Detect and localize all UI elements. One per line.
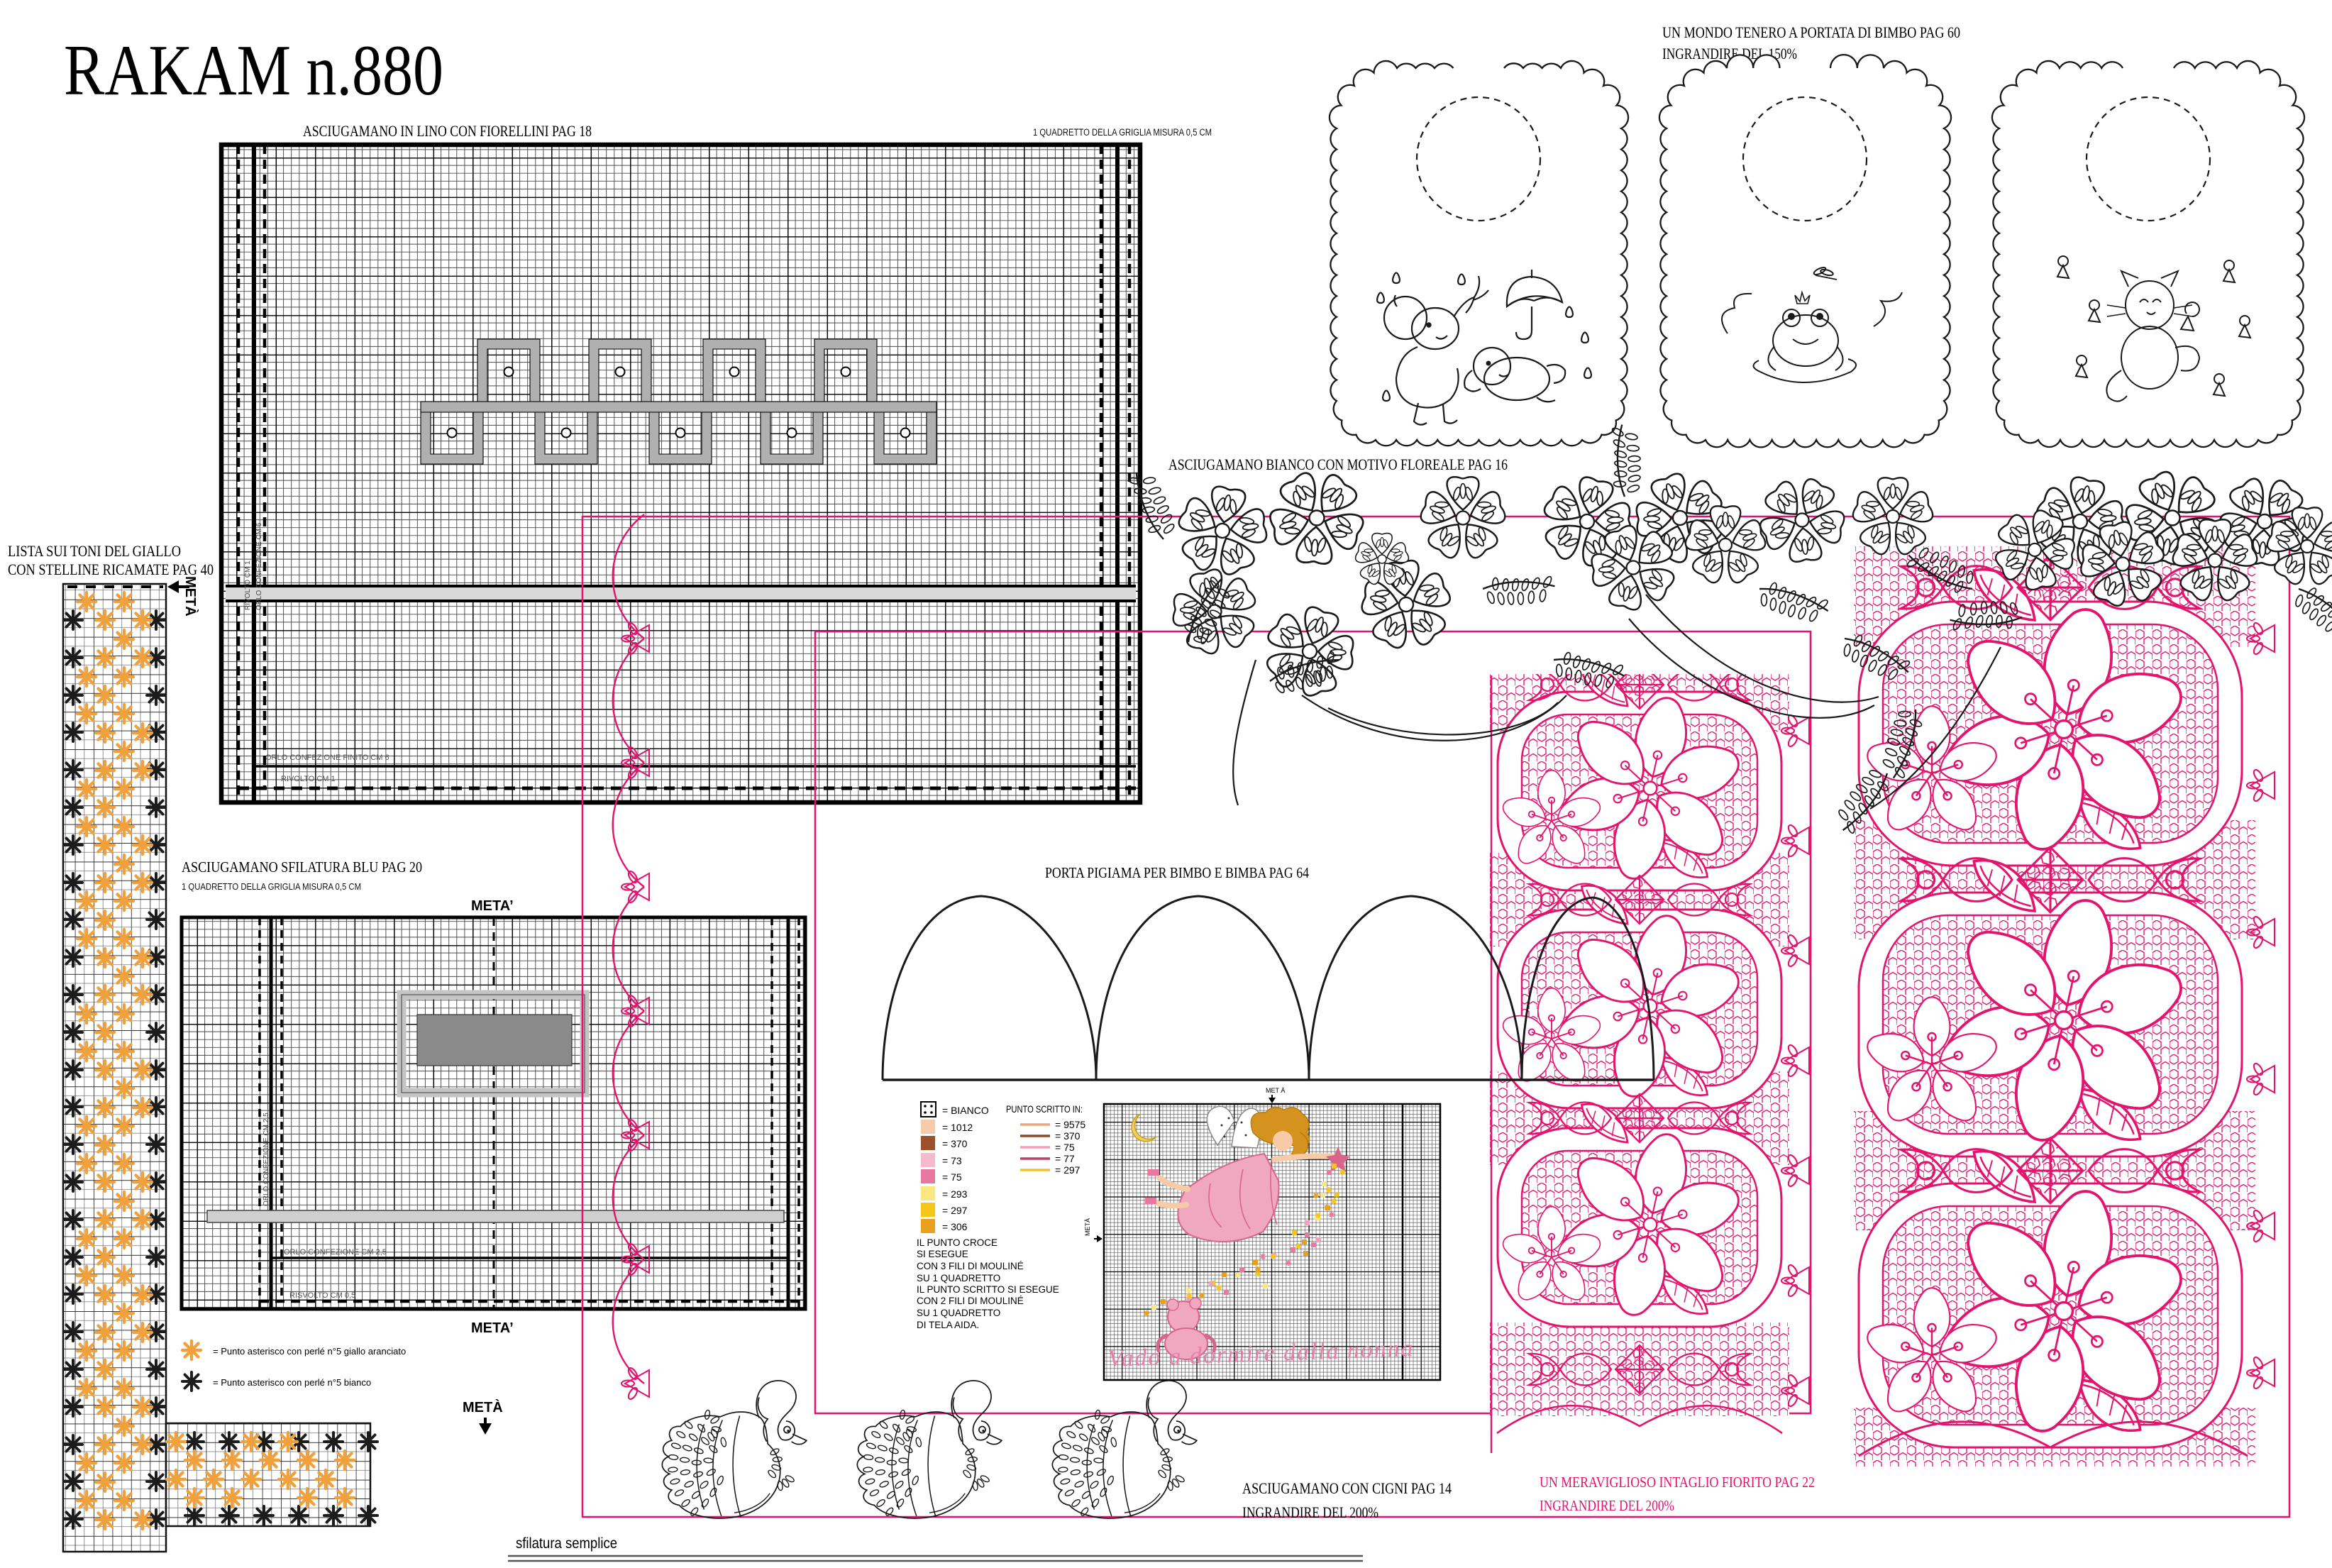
svg-text:ORLO CONFEZIONE CM 2,5: ORLO CONFEZIONE CM 2,5 xyxy=(263,1112,270,1206)
svg-text:= 75: = 75 xyxy=(942,1171,962,1183)
svg-text:ASCIUGAMANO IN LINO CON FIOREL: ASCIUGAMANO IN LINO CON FIORELLINI PAG 1… xyxy=(303,122,592,140)
svg-text:LISTA SUI TONI DEL GIALLO: LISTA SUI TONI DEL GIALLO xyxy=(8,542,181,560)
svg-text:RIVOLTO CM 1: RIVOLTO CM 1 xyxy=(244,561,252,610)
svg-text:INGRANDIRE DEL 200%: INGRANDIRE DEL 200% xyxy=(1242,1503,1378,1521)
svg-text:SI ESEGUE: SI ESEGUE xyxy=(917,1249,968,1259)
svg-text:RAKAM n.880: RAKAM n.880 xyxy=(64,31,443,111)
svg-text:= 75: = 75 xyxy=(1055,1142,1075,1153)
svg-text:1 QUADRETTO DELLA GRIGLIA MISU: 1 QUADRETTO DELLA GRIGLIA MISURA 0,5 CM xyxy=(182,881,361,892)
svg-text:MET À: MET À xyxy=(1266,1087,1285,1094)
svg-text:META’: META’ xyxy=(471,898,514,914)
svg-text:= 77: = 77 xyxy=(1055,1153,1075,1164)
svg-text:= 297: = 297 xyxy=(942,1205,968,1216)
svg-text:1 QUADRETTO DELLA GRIGLIA MISU: 1 QUADRETTO DELLA GRIGLIA MISURA 0,5 CM xyxy=(1033,127,1212,138)
svg-text:INGRANDIRE DEL 200%: INGRANDIRE DEL 200% xyxy=(1540,1497,1674,1514)
svg-text:CON 2 FILI DI MOULINÉ: CON 2 FILI DI MOULINÉ xyxy=(917,1296,1024,1306)
svg-text:IL PUNTO CROCE: IL PUNTO CROCE xyxy=(917,1237,998,1248)
svg-text:METÀ: METÀ xyxy=(1084,1218,1091,1236)
svg-text:ORLO CONFEZIONE FINITO CM 6: ORLO CONFEZIONE FINITO CM 6 xyxy=(265,753,389,762)
svg-text:= Punto asterisco con perlé n°: = Punto asterisco con perlé n°5 bianco xyxy=(213,1377,371,1388)
svg-text:METÀ: METÀ xyxy=(463,1399,503,1415)
svg-text:UN MERAVIGLIOSO INTAGLIO FIORI: UN MERAVIGLIOSO INTAGLIO FIORITO PAG 22 xyxy=(1540,1474,1815,1491)
svg-text:META’: META’ xyxy=(471,1320,514,1336)
svg-text:SU 1 QUADRETTO: SU 1 QUADRETTO xyxy=(917,1308,1000,1318)
svg-text:ASCIUGAMANO SFILATURA BLU PAG: ASCIUGAMANO SFILATURA BLU PAG 20 xyxy=(182,858,422,876)
svg-text:ASCIUGAMANO BIANCO CON MOTIVO: ASCIUGAMANO BIANCO CON MOTIVO FLOREALE P… xyxy=(1168,456,1508,473)
svg-text:ORLO CONFEZIONE CM 2,5: ORLO CONFEZIONE CM 2,5 xyxy=(284,1248,387,1257)
svg-text:= BIANCO: = BIANCO xyxy=(942,1105,989,1116)
svg-text:IL PUNTO SCRITTO SI ESEGUE: IL PUNTO SCRITTO SI ESEGUE xyxy=(917,1284,1059,1295)
svg-text:= 1012: = 1012 xyxy=(942,1122,973,1133)
svg-text:= 293: = 293 xyxy=(942,1188,968,1200)
svg-text:ORLO CONFEZIONE CM 6: ORLO CONFEZIONE CM 6 xyxy=(255,522,263,610)
svg-text:= 73: = 73 xyxy=(942,1155,962,1166)
svg-text:METÀ: METÀ xyxy=(182,576,199,617)
svg-text:DI TELA AIDA.: DI TELA AIDA. xyxy=(917,1320,979,1330)
svg-text:= 297: = 297 xyxy=(1055,1164,1081,1176)
svg-text:CON 3 FILI DI MOULINÉ: CON 3 FILI DI MOULINÉ xyxy=(917,1261,1024,1271)
svg-text:sfilatura semplice: sfilatura semplice xyxy=(516,1535,617,1552)
svg-text:= 9575: = 9575 xyxy=(1055,1119,1085,1130)
svg-text:= Punto asterisco con perlé n°: = Punto asterisco con perlé n°5 giallo a… xyxy=(213,1346,406,1357)
svg-text:ASCIUGAMANO CON CIGNI PAG 14: ASCIUGAMANO CON CIGNI PAG 14 xyxy=(1242,1479,1452,1497)
svg-text:UN MONDO TENERO A PORTATA DI B: UN MONDO TENERO A PORTATA DI BIMBO PAG 6… xyxy=(1662,23,1960,41)
svg-text:RIVOLTO CM 1: RIVOLTO CM 1 xyxy=(281,775,336,783)
svg-text:= 370: = 370 xyxy=(1055,1130,1081,1142)
svg-text:= 306: = 306 xyxy=(942,1221,968,1232)
svg-text:PUNTO SCRITTO IN:: PUNTO SCRITTO IN: xyxy=(1006,1103,1083,1115)
svg-text:PORTA PIGIAMA PER BIMBO E BIMB: PORTA PIGIAMA PER BIMBO E BIMBA PAG 64 xyxy=(1045,864,1309,881)
svg-text:RISVOLTO CM 0,5: RISVOLTO CM 0,5 xyxy=(289,1291,355,1300)
svg-text:SU 1 QUADRETTO: SU 1 QUADRETTO xyxy=(917,1273,1000,1283)
svg-text:= 370: = 370 xyxy=(942,1138,968,1149)
